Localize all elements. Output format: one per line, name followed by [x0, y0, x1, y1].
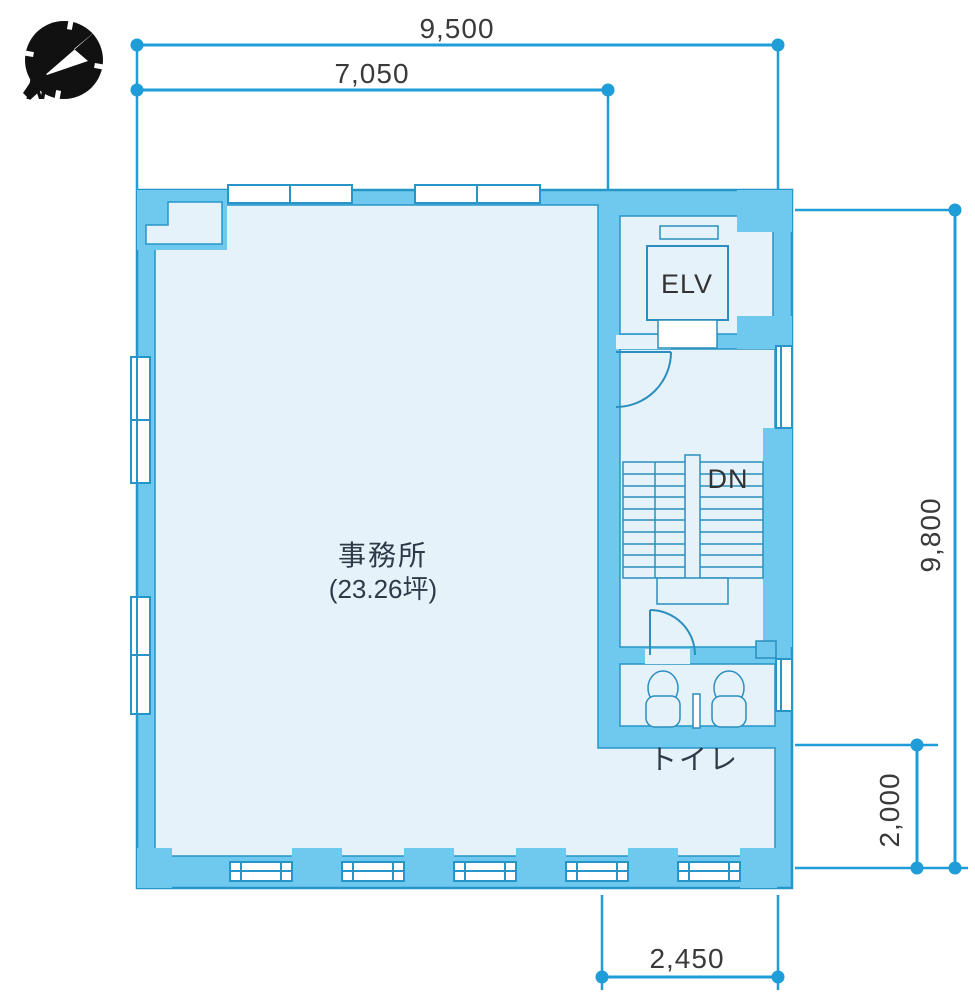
- office-label: 事務所: [338, 540, 428, 571]
- dimension-right-total: 9,800: [915, 204, 962, 875]
- toilet-2: [712, 671, 746, 727]
- compass-icon: N: [22, 18, 107, 106]
- elv-label: ELV: [661, 269, 713, 299]
- window-bottom-5: [678, 862, 740, 881]
- elevator-counterweight: [660, 226, 718, 239]
- window-right-1: [776, 346, 792, 428]
- window-bottom-2: [342, 862, 404, 881]
- elevator-door: [658, 320, 717, 348]
- building: ELV DN: [131, 185, 792, 888]
- stair-rail: [685, 455, 700, 580]
- window-bottom-3: [454, 862, 516, 881]
- dim-top-total-label: 9,500: [419, 13, 494, 44]
- floor-plan: N: [0, 0, 975, 1000]
- dimension-bottom-partial: 2,450: [596, 943, 785, 984]
- window-bottom-1: [230, 862, 292, 881]
- window-top-1: [228, 185, 352, 203]
- wall-pilaster: [756, 641, 776, 658]
- stair-landing: [657, 578, 728, 604]
- window-left-1: [131, 357, 150, 483]
- toilet-1: [646, 671, 680, 727]
- office-area-label: (23.26坪): [329, 574, 437, 604]
- toilet-label: トイレ: [649, 744, 739, 775]
- dimension-right-lower: 2,000: [874, 739, 924, 875]
- window-top-2: [415, 185, 540, 203]
- window-right-2: [776, 659, 792, 711]
- dn-label: DN: [708, 464, 749, 494]
- dimension-top-partial: 7,050: [131, 58, 615, 97]
- compass-n-label: N: [26, 73, 49, 106]
- toilet-partition: [693, 694, 700, 728]
- dim-right-total-label: 9,800: [915, 497, 946, 572]
- dim-bottom-partial-label: 2,450: [649, 943, 724, 974]
- dim-right-lower-label: 2,000: [874, 772, 905, 847]
- dimension-top-total: 9,500: [131, 13, 785, 52]
- window-bottom-4: [566, 862, 628, 881]
- toilet-door-opening: [645, 649, 690, 664]
- dim-top-partial-label: 7,050: [334, 58, 409, 89]
- window-left-2: [131, 597, 150, 714]
- floor-plan-page: N: [0, 0, 975, 1000]
